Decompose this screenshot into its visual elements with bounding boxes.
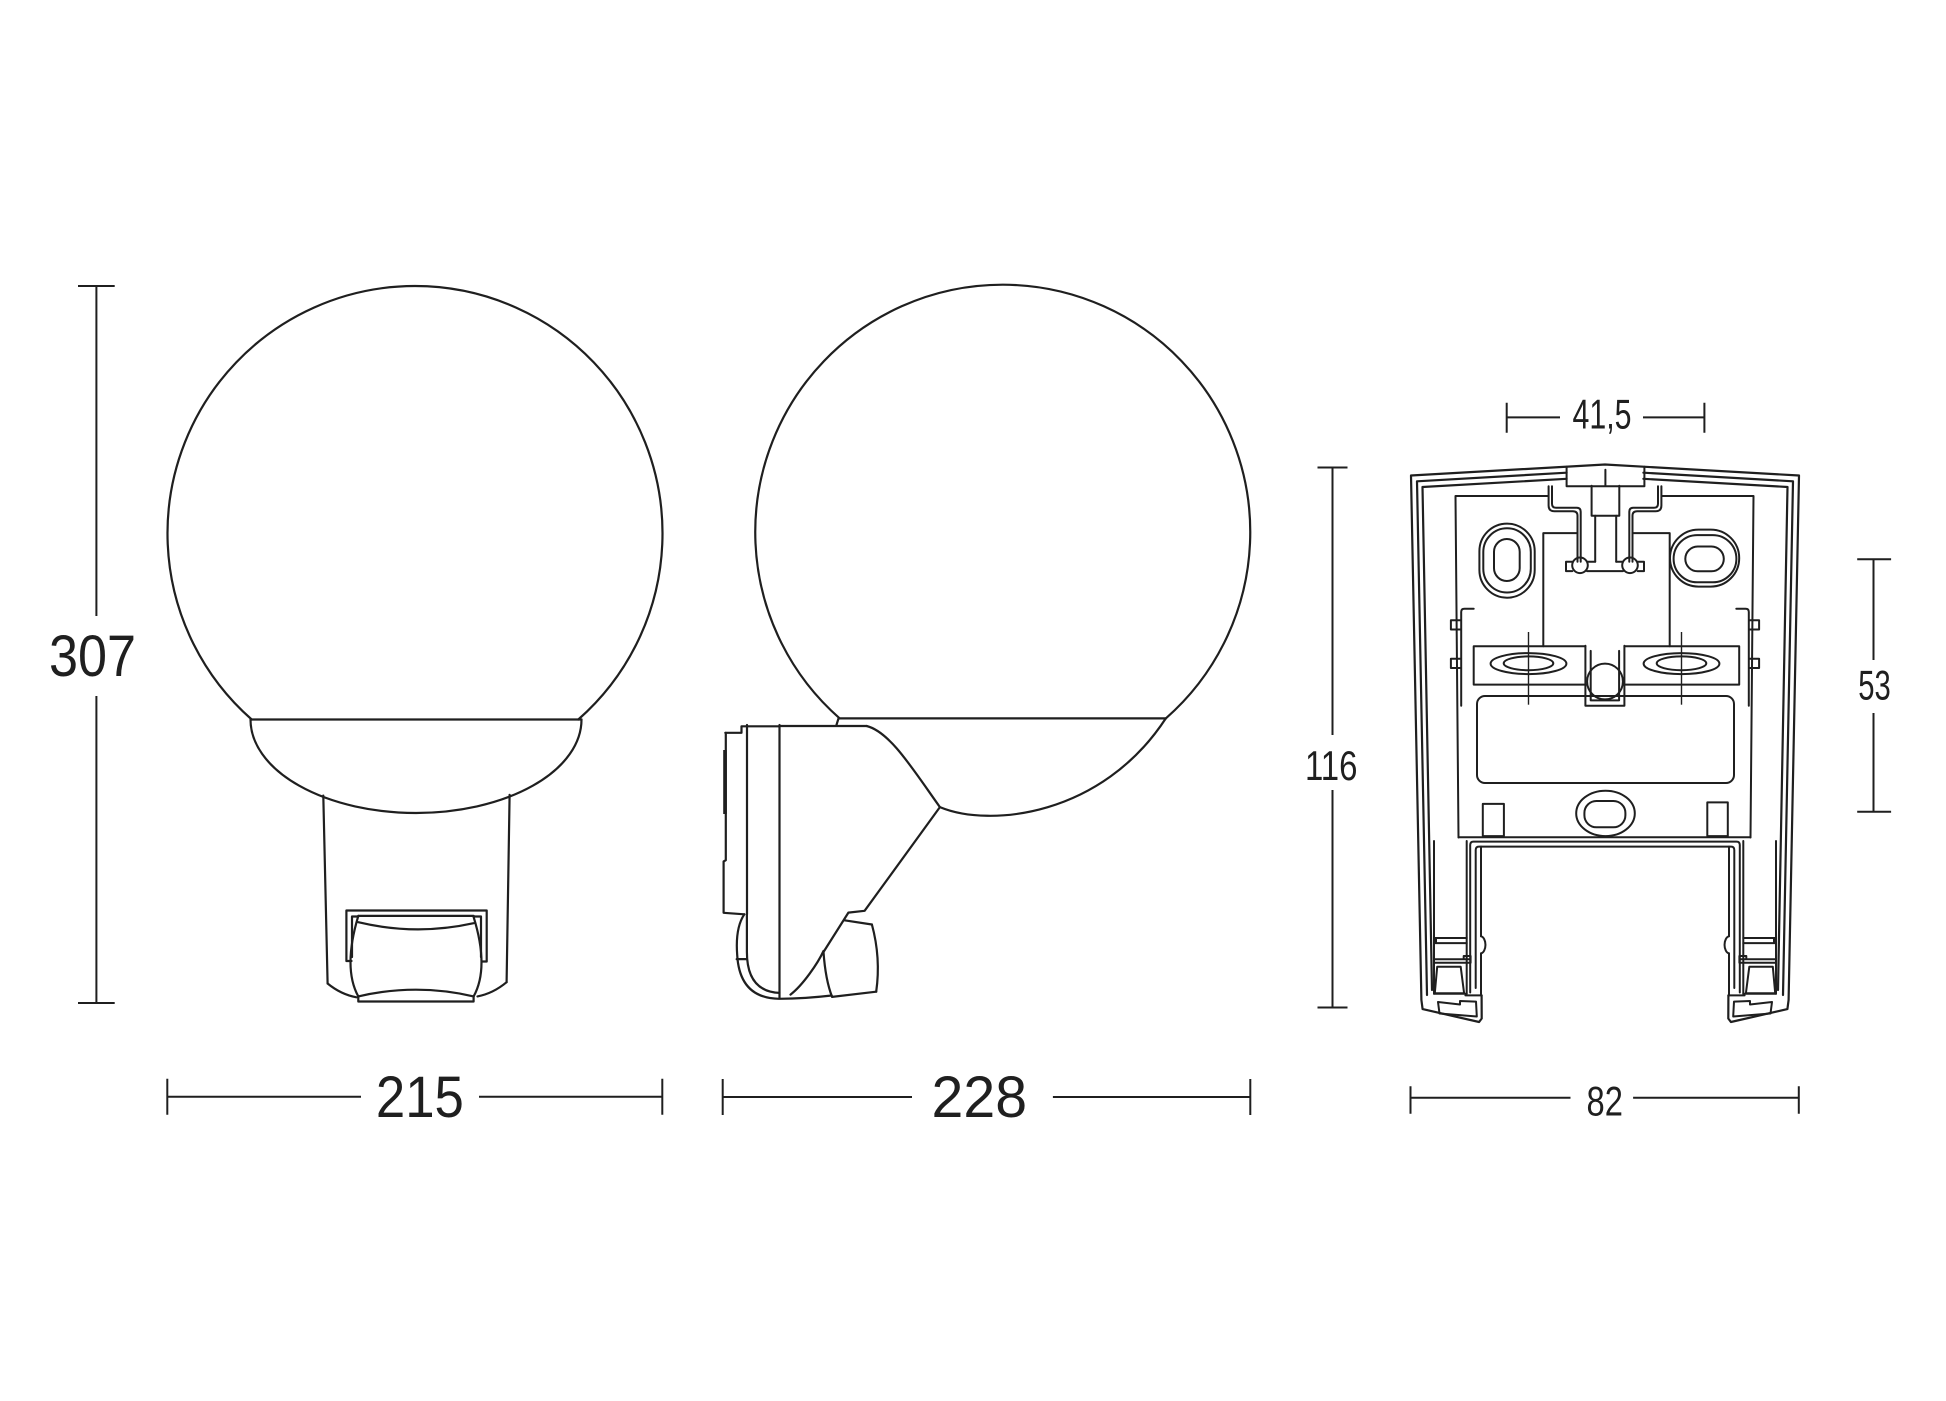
svg-text:41,5: 41,5: [1573, 391, 1632, 438]
svg-text:82: 82: [1587, 1077, 1623, 1124]
svg-text:228: 228: [932, 1065, 1028, 1130]
svg-text:215: 215: [376, 1065, 464, 1130]
svg-text:307: 307: [49, 624, 136, 689]
svg-text:116: 116: [1305, 742, 1358, 789]
svg-text:53: 53: [1858, 661, 1891, 708]
